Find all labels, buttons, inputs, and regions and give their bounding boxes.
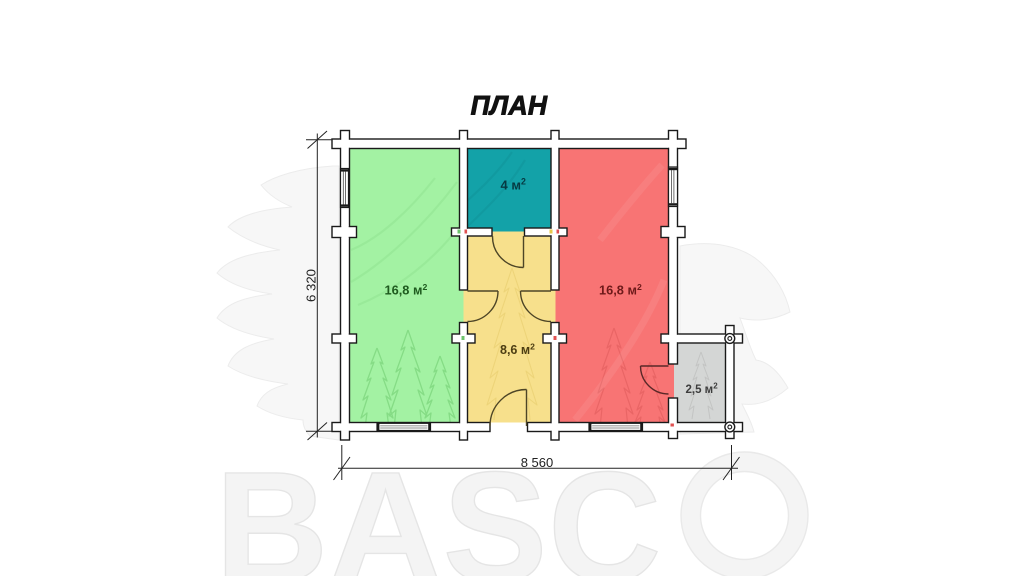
svg-text:BASC: BASC <box>215 440 662 576</box>
svg-text:6 320: 6 320 <box>304 269 319 302</box>
svg-text:16,8 м2: 16,8 м2 <box>599 282 642 298</box>
svg-text:ПЛАН: ПЛАН <box>471 91 548 121</box>
svg-text:16,8 м2: 16,8 м2 <box>385 282 428 298</box>
svg-text:8,6 м2: 8,6 м2 <box>500 341 535 357</box>
svg-text:8 560: 8 560 <box>521 455 554 470</box>
